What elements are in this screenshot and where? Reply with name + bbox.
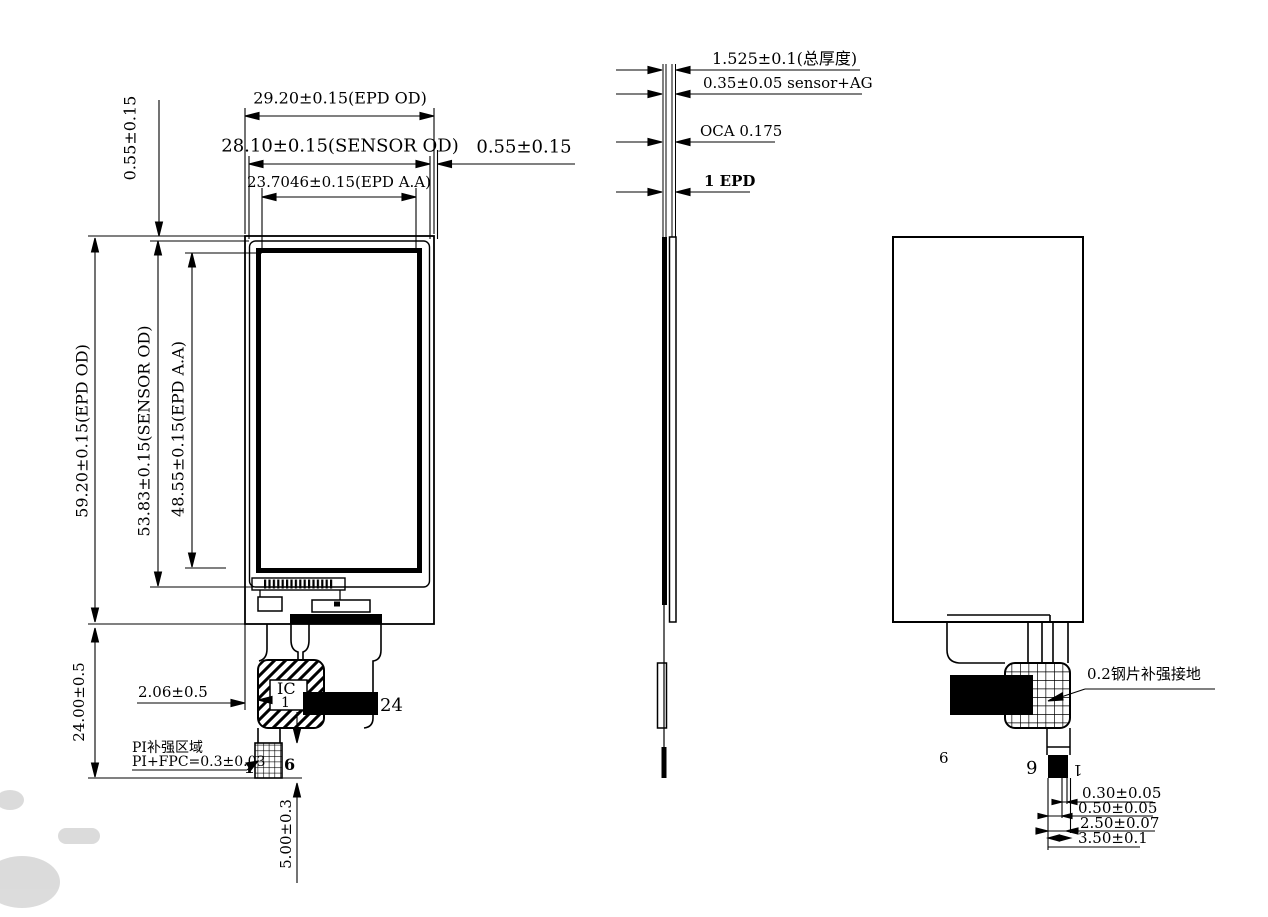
- back-fpc-tab: [947, 622, 1068, 663]
- dim-oca: OCA 0.175: [700, 124, 782, 140]
- back-dim-4: 3.50±0.1: [1078, 831, 1148, 847]
- steel-sheet-note: 0.2钢片补强接地: [1087, 667, 1201, 683]
- pi-pin1-label: 1: [244, 761, 254, 777]
- front-small-component-left: [258, 597, 282, 611]
- front-small-component-center: [312, 600, 370, 612]
- front-contact-strip-stripes: [263, 580, 334, 589]
- front-epd-od-outline: [245, 236, 434, 624]
- back-tail-black-square: [1048, 755, 1068, 778]
- back-connector-black: [950, 675, 1033, 715]
- side-epd-glass: [670, 237, 677, 622]
- dim-height-epd-od: 59.20±0.15(EPD OD): [75, 344, 92, 518]
- dim-tail-length: 5.00±0.3: [279, 799, 295, 869]
- front-bezel: [259, 251, 420, 571]
- dim-gap-right: 0.55±0.15: [476, 139, 571, 158]
- back-panel-outline: [893, 237, 1083, 622]
- dim-ic-offset: 2.06±0.5: [138, 685, 208, 701]
- side-view: [658, 64, 677, 778]
- front-view: [245, 236, 434, 778]
- front-component-mark: [334, 602, 340, 607]
- side-stiffener-profile: [658, 663, 667, 728]
- front-black-bar: [290, 614, 382, 624]
- back-pin6-label: 6: [939, 751, 949, 767]
- dim-height-epd-aa: 48.55±0.15(EPD A.A): [171, 341, 188, 517]
- side-tail-end: [662, 747, 667, 778]
- scan-artifacts: [0, 790, 100, 908]
- dim-sensor-ag: 0.35±0.05 sensor+AG: [703, 76, 873, 92]
- ic-pin24-label: 24: [380, 697, 403, 716]
- ic-pin1-label: 1: [281, 696, 290, 711]
- side-sensor-glass: [662, 237, 667, 605]
- dim-width-sensor-od: 28.10±0.15(SENSOR OD): [221, 138, 459, 157]
- dim-gap-top: 0.55±0.15: [123, 96, 140, 181]
- pi-pin6-label: 6: [284, 757, 295, 774]
- dim-width-epd-od: 29.20±0.15(EPD OD): [253, 91, 427, 108]
- dim-epd-layer: 1 EPD: [704, 174, 755, 190]
- dim-width-epd-aa: 23.7046±0.15(EPD A.A): [247, 175, 431, 191]
- drawing-linework: [0, 0, 1268, 917]
- dim-total-thickness: 1.525±0.1(总厚度): [712, 51, 857, 68]
- dim-fpc-length: 24.00±0.5: [72, 662, 88, 741]
- front-sensor-od-outline: [250, 241, 430, 587]
- dim-height-sensor-od: 53.83±0.15(SENSOR OD): [137, 325, 154, 536]
- back-pin1-rotated: 1: [1073, 761, 1083, 777]
- back-pin6-rotated: 6: [1026, 756, 1037, 775]
- front-cof-black-bar: [303, 692, 378, 715]
- engineering-drawing: 29.20±0.15(EPD OD) 28.10±0.15(SENSOR OD)…: [0, 0, 1268, 917]
